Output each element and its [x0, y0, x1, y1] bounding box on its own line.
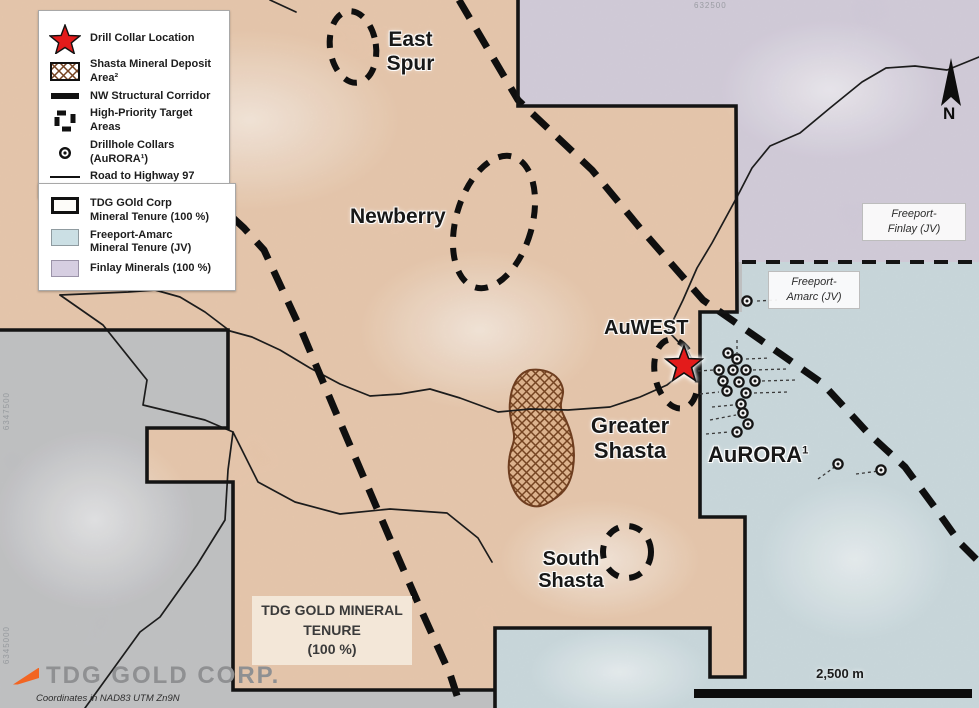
drillhole-collar-dot: [746, 300, 749, 303]
drillhole-collar-dot: [718, 369, 721, 372]
north-label: N: [943, 104, 955, 124]
legend-label: Finlay Minerals (100 %): [90, 262, 211, 276]
label-freeport-finlay-box: Freeport- Finlay (JV): [862, 203, 966, 241]
legend-label: Drillhole Collars (AuRORA¹): [90, 139, 219, 167]
legend-label: Drill Collar Location: [90, 32, 195, 46]
legend-row-drillhole-collars: Drillhole Collars (AuRORA¹): [49, 139, 219, 167]
tdg-logo-icon: [13, 668, 39, 685]
label-freeport-amarc-box: Freeport- Amarc (JV): [768, 271, 860, 309]
dashed-corner-icon: [49, 109, 81, 133]
label-greater-shasta: Greater Shasta: [575, 414, 685, 463]
tdg-logo: TDG GOLD CORP.: [13, 662, 280, 690]
grid-ref-left-mid: 6347500: [2, 392, 11, 430]
collar-circle-icon: [49, 145, 81, 161]
thick-line-icon: [49, 93, 81, 99]
scale-label: 2,500 m: [795, 666, 885, 681]
legend-row-corridor: NW Structural Corridor: [49, 90, 219, 104]
drillhole-collar-dot: [727, 352, 730, 355]
drillhole-collar-dot: [880, 469, 883, 472]
legend-row-freeport-amarc: Freeport-Amarc Mineral Tenure (JV): [49, 229, 225, 257]
drillhole-collar-dot: [740, 403, 743, 406]
drillhole-collar-dot: [722, 380, 725, 383]
label-aurora-superscript: 1: [802, 444, 808, 456]
legend-label: Road to Highway 97: [90, 170, 195, 184]
label-aurora-text: AuRORA: [708, 442, 802, 467]
label-east-spur: East Spur: [368, 28, 453, 75]
tdg-outline-swatch: [49, 197, 81, 214]
drillhole-collar-dot: [837, 463, 840, 466]
legend-row-road: Road to Highway 97: [49, 170, 219, 184]
legend-row-deposit-area: Shasta Mineral Deposit Area²: [49, 58, 219, 86]
hatch-swatch-icon: [49, 62, 81, 81]
drillhole-collar-dot: [745, 392, 748, 395]
legend-tenure: TDG GOld Corp Mineral Tenure (100 %) Fre…: [38, 183, 236, 291]
thin-line-icon: [49, 176, 81, 178]
label-newberry: Newberry: [350, 205, 446, 229]
freeport-amarc-swatch: [49, 229, 81, 246]
drillhole-collar-dot: [754, 380, 757, 383]
label-auwest: AuWEST: [604, 317, 688, 339]
label-aurora: AuRORA1: [708, 418, 808, 467]
tdg-logo-text: TDG GOLD CORP.: [46, 662, 280, 690]
drillhole-collar-dot: [726, 390, 729, 393]
grid-ref-left-bottom: 6345000: [2, 626, 11, 664]
legend-row-drill-collar: Drill Collar Location: [49, 24, 219, 54]
drillhole-collar-dot: [736, 358, 739, 361]
legend-row-target-areas: High-Priority Target Areas: [49, 107, 219, 135]
legend-row-finlay: Finlay Minerals (100 %): [49, 260, 225, 277]
drillhole-collar-dot: [738, 381, 741, 384]
label-south-shasta: South Shasta: [528, 548, 614, 593]
coordinates-note: Coordinates in NAD83 UTM Zn9N: [36, 693, 180, 704]
drillhole-collar-dot: [732, 369, 735, 372]
label-tdg-tenure-box: TDG GOLD MINERAL TENURE (100 %): [252, 596, 412, 665]
drillhole-collar-dot: [742, 412, 745, 415]
legend-label: High-Priority Target Areas: [90, 107, 219, 135]
finlay-swatch: [49, 260, 81, 277]
legend-label: Freeport-Amarc Mineral Tenure (JV): [90, 229, 191, 257]
legend-row-tdg: TDG GOld Corp Mineral Tenure (100 %): [49, 197, 225, 225]
legend-label: NW Structural Corridor: [90, 90, 210, 104]
legend-label: TDG GOld Corp Mineral Tenure (100 %): [90, 197, 209, 225]
legend-symbols: Drill Collar Location Shasta Mineral Dep…: [38, 10, 230, 198]
scale-bar: [694, 689, 972, 698]
star-icon: [49, 24, 81, 54]
drillhole-collar-dot: [745, 369, 748, 372]
grid-ref-top: 632500: [694, 1, 727, 10]
map-canvas: Drill Collar Location Shasta Mineral Dep…: [0, 0, 979, 708]
legend-label: Shasta Mineral Deposit Area²: [90, 58, 219, 86]
